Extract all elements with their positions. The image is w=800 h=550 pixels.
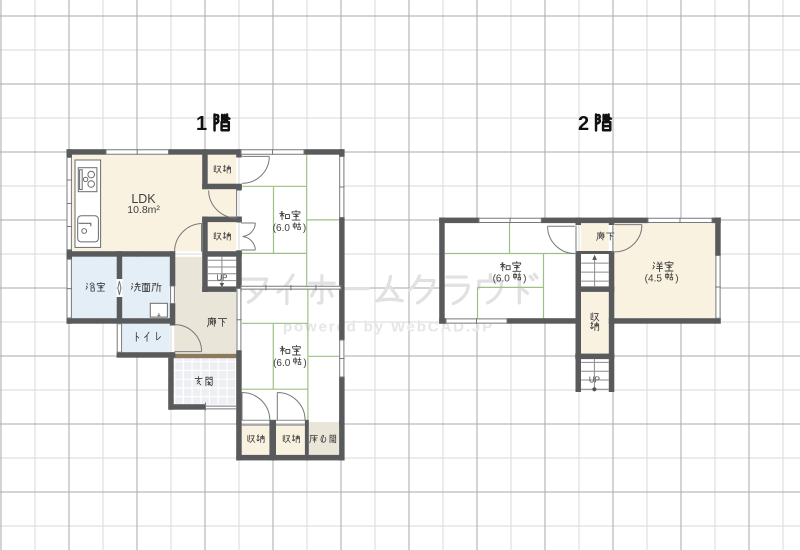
svg-text:(6.0: (6.0 [493,273,511,284]
svg-text:2: 2 [578,113,589,135]
svg-text:(6.0: (6.0 [273,358,291,369]
svg-text:UP: UP [589,376,600,385]
svg-text:1: 1 [196,113,207,135]
svg-text:): ) [523,273,526,284]
svg-text:): ) [303,358,306,369]
svg-text:(6.0: (6.0 [273,223,291,234]
svg-text:UP: UP [216,274,227,283]
svg-text:): ) [675,273,678,284]
svg-text:(4.5: (4.5 [645,273,663,284]
svg-text:10.8m²: 10.8m² [127,204,160,216]
svg-text:): ) [303,223,306,234]
